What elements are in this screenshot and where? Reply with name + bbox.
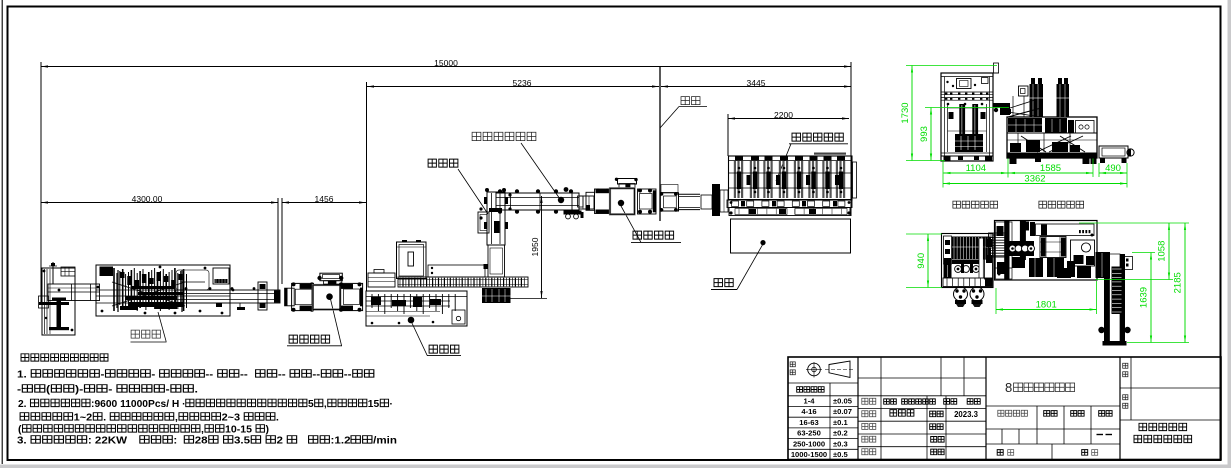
svg-text:15000: 15000 [434,58,458,68]
svg-text:2~3: 2~3 [222,413,241,423]
svg-text:16-63: 16-63 [799,418,818,427]
svg-text:2200: 2200 [774,110,793,120]
svg-text:4300.00: 4300.00 [132,194,163,204]
svg-text:28: 28 [195,435,208,446]
svg-text:2.: 2. [18,399,27,410]
svg-text:--: -- [205,369,213,380]
svg-text:2023.3: 2023.3 [954,410,979,419]
svg-text:±0.05: ±0.05 [833,397,853,406]
svg-text:1456: 1456 [315,194,334,204]
svg-text:3.5: 3.5 [234,435,250,446]
svg-text:)-: )- [75,385,84,396]
svg-text:--: -- [344,369,352,380]
svg-text:1585: 1585 [1040,163,1061,174]
svg-text:-: - [151,369,155,380]
svg-text:±0.2: ±0.2 [833,429,848,438]
svg-text:1801: 1801 [1036,300,1057,311]
svg-text::1.2: :1.2 [331,435,351,446]
svg-text:15: 15 [368,399,380,410]
svg-text:1.: 1. [17,369,27,380]
svg-text:5: 5 [308,399,314,410]
svg-text:/min: /min [373,435,397,446]
svg-text:4-16: 4-16 [801,407,816,416]
svg-text:(: ( [46,385,50,396]
svg-text:1-4: 1-4 [804,397,816,406]
svg-text:±0.07: ±0.07 [833,407,852,416]
svg-text:1104: 1104 [966,163,986,174]
svg-text:-: - [100,369,104,380]
svg-text:1639: 1639 [1139,287,1150,308]
svg-text:63-250: 63-250 [797,429,821,438]
svg-text:.: . [103,413,106,423]
svg-text:993: 993 [919,126,930,142]
svg-text:940: 940 [916,253,927,269]
svg-text:,: , [201,425,204,436]
svg-text:--: -- [312,369,320,380]
svg-text::: : [173,435,177,446]
svg-text:3362: 3362 [1024,174,1045,185]
svg-text:±0.3: ±0.3 [833,439,848,448]
svg-text:1~2: 1~2 [74,413,93,423]
svg-text:2: 2 [277,435,283,446]
svg-text:3445: 3445 [747,78,766,88]
svg-text:1000-1500: 1000-1500 [791,450,827,459]
svg-text:.: . [276,413,279,423]
svg-text:3.: 3. [17,435,27,446]
svg-text:,: , [324,399,327,410]
svg-text:(: ( [18,425,22,436]
svg-text:--: -- [240,369,248,380]
svg-text:±0.1: ±0.1 [833,418,849,427]
svg-text:.: . [195,385,198,396]
svg-text:±0.5: ±0.5 [833,450,849,459]
svg-text:2185: 2185 [1173,272,1184,293]
svg-text:5236: 5236 [513,78,532,88]
svg-text:8: 8 [1005,380,1012,395]
svg-text:1058: 1058 [1157,241,1168,262]
svg-text:-: - [17,385,21,396]
svg-text:250-1000: 250-1000 [793,439,825,448]
svg-text:,: , [175,413,178,423]
svg-text:: 22KW: : 22KW [88,435,128,446]
svg-text:·: · [389,399,392,410]
svg-text:1730: 1730 [900,102,911,123]
svg-text:--: -- [278,369,286,380]
svg-text:): ) [266,425,270,436]
svg-text:-: - [108,385,112,396]
svg-text:1950: 1950 [530,237,540,256]
svg-text:490: 490 [1105,163,1121,174]
svg-text::9600 11000Pcs/ H ·: :9600 11000Pcs/ H · [91,399,186,410]
svg-text:10-15: 10-15 [225,425,252,436]
svg-text:-: - [165,385,169,396]
